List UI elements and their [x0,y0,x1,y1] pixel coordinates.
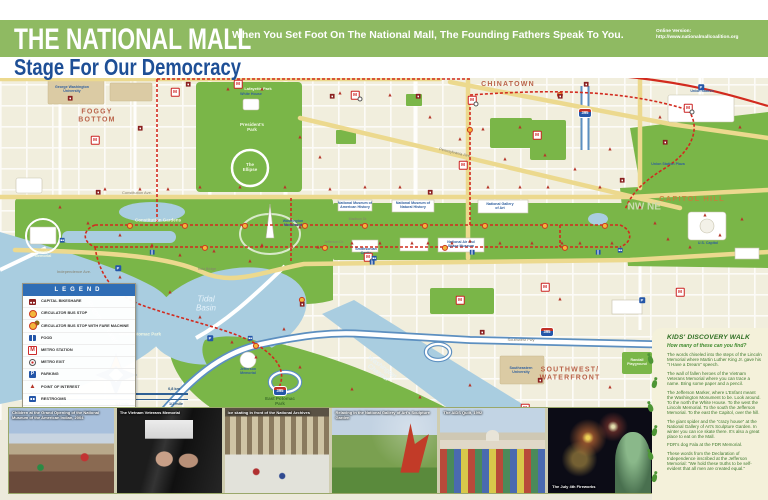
poi-marker: ▲ [211,249,216,255]
circulator-stop-icon [442,245,448,251]
photo: The July 4th Fireworks [548,408,653,493]
poi-marker: ▲ [529,241,534,247]
poi-marker: ▲ [297,365,302,371]
map-label: Southwest Fwy [507,338,534,342]
photo: Relaxing in the National Gallery of Art'… [332,408,437,493]
poi-marker: ▲ [739,217,744,223]
bikeshare-icon [663,140,668,145]
metro-exit-icon [474,102,479,107]
map-label: National Gallery of Art [486,203,513,211]
bikeshare-legend-icon [28,298,37,306]
sidebar-paragraph: The Jefferson Marker, where L'Enfant mea… [667,390,763,415]
poi-marker: ▲ [225,87,230,93]
poi-marker: ▲ [637,205,642,211]
poi-marker: ▲ [557,297,562,303]
map-label: The Ellipse [243,163,258,173]
map-label: CAPITOL HILL [659,195,725,203]
map-label: Pennsylvania Ave. [439,147,472,159]
map-label: East Potomac Park [265,397,295,407]
main-title: THE NATIONAL MALL [14,23,251,57]
food-icon [596,250,601,255]
circulator-stop-icon [202,245,208,251]
circulator-stop-icon [362,223,368,229]
poi-marker: ▲ [737,125,742,131]
restrooms-glyph [29,396,36,403]
poi-marker: ▲ [197,315,202,321]
poi-marker: ▲ [327,187,332,193]
map-label: Independence Ave. [57,270,91,274]
bikeshare-icon [186,82,191,87]
poi-marker: ▲ [467,383,472,389]
sidebar-paragraph: These words from the Declaration of Inde… [667,451,763,471]
poi-marker: ▲ [657,115,662,121]
metro-station-icon: M [541,283,550,292]
poi-marker: ▲ [717,233,722,239]
parking-icon: P [698,84,704,90]
map-label: CHINATOWN [481,81,535,89]
bikeshare-icon [620,178,625,183]
parking-icon: P [207,335,213,341]
photo: Children at the Grand Opening of the Nat… [9,408,114,493]
metro-exit-legend-icon [28,359,37,367]
header: THE NATIONAL MALL Stage For Our Democrac… [0,0,768,78]
map-label: White House [240,93,262,97]
photo-caption: Relaxing in the National Gallery of Art'… [335,410,434,420]
poi-marker: ▲ [397,185,402,191]
circulator-stop-icon [467,127,473,133]
legend-title: LEGEND [23,284,135,296]
poi-marker: ▲ [362,185,367,191]
map-label: National Museum of American History [338,202,372,210]
map-label: Southeastern University [510,367,533,375]
map-label: Jefferson Memorial [240,368,256,376]
poi-marker: ▲ [607,147,612,153]
poi-marker: ▲ [425,241,430,247]
parking-icon: P [115,265,121,271]
poi-marker: ▲ [502,157,507,163]
poi-marker: ▲ [377,241,382,247]
poi-marker: ▲ [337,91,342,97]
poi-marker: ▲ [102,187,107,193]
poi-marker: ▲ [387,93,392,99]
food-legend-icon [28,334,37,342]
online-version: Online Version: http://www.nationalmallc… [656,29,738,41]
poi-marker: ▲ [259,243,264,249]
map-label: Union Station Plaza [651,163,685,167]
map-label: National Museum of Natural History [396,202,430,210]
poi-marker: ▲ [517,185,522,191]
map-label: U.S. Capitol [698,242,718,246]
poi-marker: ▲ [253,355,258,361]
map-label: Constitution Gardens [135,219,181,224]
bikeshare-glyph [29,299,36,305]
poi-marker: ▲ [177,253,182,259]
photo: Ice skating in front of the National Arc… [225,408,330,493]
interstate-shield: 395 [540,327,554,337]
legend-rows: CAPITAL BIKESHARECIRCULATOR BUS STOPCIRC… [23,296,135,418]
map-label: Union Station [690,90,713,94]
poi-marker: ▲ [57,205,62,211]
national-mall-map-poster: FOGGY BOTTOMCHINATOWNCAPITOL HILLSOUTHWE… [0,0,768,500]
map-label: Madison Dr. [349,218,368,222]
circulator-fare-glyph [29,322,37,330]
poi-marker: ▲ [297,135,302,141]
map-label: President's Park [240,123,264,133]
photo: The AIDS Quilt, 1992 [440,408,545,493]
legend-item: RESTROOMS [23,394,135,406]
legend-item-label: CIRCULATOR BUS STOP WITH FARE MACHINE [41,324,129,329]
map-label: Lafayette Park [244,87,271,91]
poi-marker: ▲ [545,185,550,191]
circulator-stop-icon [242,223,248,229]
poi-marker: ▲ [597,185,602,191]
legend-item: CAPITAL BIKESHARE [23,296,135,308]
tagline: When You Set Foot On The National Mall, … [232,29,662,41]
poi-marker: ▲ [229,340,234,346]
legend-item-label: FOOD [41,336,52,341]
map-label: Randall Playground [627,359,647,367]
legend-item-label: METRO STATION [41,348,73,353]
restroom-icon [618,248,623,253]
poi-marker: ▲ [427,115,432,121]
sidebar-paragraphs: The words chiseled into the steps of the… [667,352,763,471]
circulator-stop-icon [322,245,328,251]
metro-station-icon: M [456,296,465,305]
sidebar-paragraph: The wall of fallen heroes of the Vietnam… [667,371,763,386]
photo-caption: The Vietnam Veterans Memorial [120,410,219,415]
poi-marker: ▲ [281,327,286,333]
poi-marker: ▲ [485,185,490,191]
bikeshare-icon [330,94,335,99]
poi-marker: ▲ [167,290,172,296]
poi-marker: ▲ [165,187,170,193]
poi-marker: ▲ [349,387,354,393]
map-label: Tidal Basin [196,295,216,312]
poi-marker: ▲ [259,87,264,93]
poi-marker: ▲ [315,245,320,251]
poi-marker: ▲ [702,213,707,219]
food-glyph [29,335,36,342]
bikeshare-icon [138,126,143,131]
sidebar-paragraph: The words chiseled into the steps of the… [667,352,763,367]
interstate-shield: 395 [578,108,592,118]
legend-item: MMETRO STATION [23,345,135,357]
map-label: NE [647,203,661,214]
legend-item: CIRCULATOR BUS STOP [23,308,135,320]
metro-station-icon: M [459,161,468,170]
circulator-stop-icon [602,223,608,229]
circulator-stop-icon [253,343,259,349]
bikeshare-icon [68,96,73,101]
poi-marker: ▲ [572,167,577,173]
metro-glyph: M [28,346,37,355]
poi-marker: ▲ [197,185,202,191]
poi-marker: ▲ [449,241,454,247]
legend-item: PPARKING [23,369,135,381]
legend-item-label: RESTROOMS [41,397,66,402]
poi-marker: ▲ [237,185,242,191]
circulator-stop-icon [562,245,568,251]
legend-item-label: PARKING [41,372,59,377]
kids-discovery-walk-panel: KIDS' DISCOVERY WALK How many of these c… [652,328,768,500]
poi-marker: ▲ [457,137,462,143]
photo-caption: The July 4th Fireworks [552,484,650,489]
photo-strip: Children at the Grand Opening of the Nat… [8,407,654,494]
poi-marker: ▲ [149,243,154,249]
poi-marker: ▲ [542,153,547,159]
poi-glyph: ▲ [29,384,35,391]
legend-item: FOOD [23,333,135,345]
circulator-glyph [29,310,37,318]
metro-station-icon: M [91,136,100,145]
poi-marker: ▲ [247,259,252,265]
scale-km-label: 0,8 km [168,387,180,391]
metro-station-icon: M [171,88,180,97]
poi-marker: ▲ [497,241,502,247]
poi-marker: ▲ [665,237,670,243]
bikeshare-icon [96,190,101,195]
bikeshare-icon [428,190,433,195]
poi-marker: ▲ [467,239,472,245]
poi-legend-icon: ▲ [28,383,37,391]
poi-marker: ▲ [282,185,287,191]
restroom-icon [248,336,253,341]
metro-exit-icon [690,110,695,115]
parking-legend-icon: P [28,371,37,379]
circulator-stop-icon [542,223,548,229]
bikeshare-icon [558,94,563,99]
sidebar-title: KIDS' DISCOVERY WALK [667,334,763,341]
restroom-icon [60,238,65,243]
circulator-stop-icon [482,223,488,229]
legend-item-label: METRO EXIT [41,360,65,365]
photo-caption: Ice skating in front of the National Arc… [228,410,327,415]
online-version-url: http://www.nationalmallcoalition.org [656,35,738,41]
metro-exit-glyph [29,359,37,367]
map-label: SOUTHWEST/ WATERFRONT [540,366,601,381]
bikeshare-icon [480,330,485,335]
circulator-stop-icon [127,223,133,229]
circulator-stop-icon [182,223,188,229]
poi-marker: ▲ [409,241,414,247]
metro-station-icon: M [234,80,243,89]
poi-marker: ▲ [137,187,142,193]
poi-marker: ▲ [85,221,90,227]
sidebar-paragraph: The giant spider and the "crazy house" a… [667,419,763,439]
legend-item-label: CAPITAL BIKESHARE [41,299,82,304]
poi-marker: ▲ [417,395,422,401]
circulator-legend-icon [28,310,37,318]
circulator-stop-icon [302,223,308,229]
restrooms-legend-icon [28,395,37,403]
sidebar-paragraph: FDR's dog Fala at the FDR Memorial. [667,442,763,447]
metro-legend-icon: M [28,346,37,354]
metro-station-icon: M [676,288,685,297]
metro-station-icon: M [533,131,542,140]
poi-marker: ▲ [480,127,485,133]
bikeshare-icon [416,94,421,99]
poi-marker: ▲ [349,241,354,247]
bikeshare-icon [584,82,589,87]
map-label: Kutz Bridge [198,268,216,272]
circulator-stop-icon [422,223,428,229]
poi-marker: ▲ [117,233,122,239]
parking-glyph: P [29,371,36,378]
poi-marker: ▲ [607,385,612,391]
legend-item: ▲POINT OF INTEREST [23,381,135,393]
poi-marker: ▲ [609,241,614,247]
scale-half-mile-label: 1/2 mile [169,402,183,406]
food-icon [470,250,475,255]
metro-exit-icon [358,97,363,102]
parking-icon: P [639,297,645,303]
subtitle: Stage For Our Democracy [14,54,241,81]
legend-item-label: CIRCULATOR BUS STOP [41,311,87,316]
poi-marker: ▲ [577,241,582,247]
sidebar-subtitle: How many of these can you find? [667,343,763,349]
legend-item: CIRCULATOR BUS STOP WITH FARE MACHINE [23,320,135,332]
poi-marker: ▲ [687,245,692,251]
food-icon [150,250,155,255]
photo-caption: The AIDS Quilt, 1992 [443,410,542,415]
poi-marker: ▲ [117,275,122,281]
bikeshare-icon [300,302,305,307]
poi-marker: ▲ [652,221,657,227]
poi-marker: ▲ [517,125,522,131]
interstate-shield: 395 [273,386,287,396]
photo-caption: Children at the Grand Opening of the Nat… [12,410,111,420]
photo: The Vietnam Veterans Memorial [117,408,222,493]
legend-item-label: POINT OF INTEREST [41,385,80,390]
legend-item: METRO EXIT [23,357,135,369]
map-label: Lincoln Memorial [35,250,52,258]
food-icon [370,260,375,265]
circulator-fare-legend-icon [28,322,37,330]
map-label: Jefferson Dr. [324,241,344,245]
map-label: Washington Channel [362,354,398,386]
legend: LEGEND CAPITAL BIKESHARECIRCULATOR BUS S… [22,283,136,419]
map-label: FOGGY BOTTOM [78,108,115,123]
poi-marker: ▲ [317,155,322,161]
bikeshare-icon [538,378,543,383]
map-label: George Washington University [55,86,89,94]
restroom-icon [372,256,377,261]
